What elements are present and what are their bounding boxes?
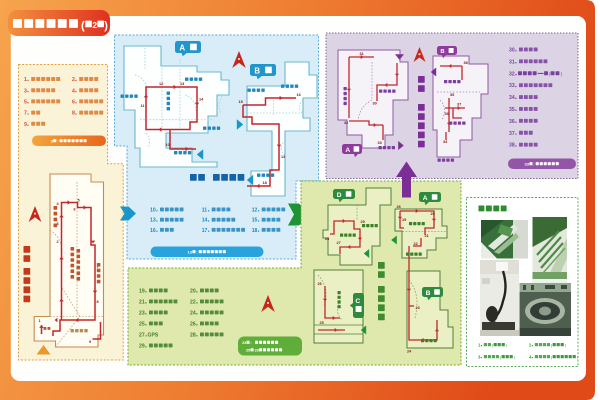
svg-text:38: 38 xyxy=(464,61,468,65)
svg-text:19: 19 xyxy=(139,289,145,295)
svg-text:13: 13 xyxy=(180,82,184,86)
svg-text:2: 2 xyxy=(92,20,97,30)
svg-text:2: 2 xyxy=(57,240,59,244)
svg-text:B: B xyxy=(440,49,444,55)
svg-text:26: 26 xyxy=(318,282,322,286)
svg-text:29: 29 xyxy=(361,220,365,224)
svg-text:23: 23 xyxy=(416,306,420,310)
svg-text:16: 16 xyxy=(150,228,156,234)
svg-text:29: 29 xyxy=(139,344,145,350)
svg-text:11: 11 xyxy=(141,104,145,108)
svg-text:19: 19 xyxy=(402,218,406,222)
svg-text:37: 37 xyxy=(457,103,461,107)
svg-text:24: 24 xyxy=(190,311,196,317)
svg-text:1: 1 xyxy=(24,77,27,83)
svg-text:36: 36 xyxy=(445,112,449,116)
svg-text:34: 34 xyxy=(509,95,515,101)
svg-text:8: 8 xyxy=(72,111,75,117)
svg-text:31: 31 xyxy=(360,52,364,56)
svg-text:30: 30 xyxy=(373,102,377,106)
svg-text:37: 37 xyxy=(509,131,515,137)
svg-text:8: 8 xyxy=(97,300,99,304)
svg-text:25: 25 xyxy=(320,321,324,325)
svg-text::: : xyxy=(533,161,534,166)
svg-text:(: ( xyxy=(81,20,85,32)
svg-text:B: B xyxy=(254,66,260,75)
svg-text:15: 15 xyxy=(239,100,243,104)
svg-text:C: C xyxy=(355,298,360,305)
svg-text:9: 9 xyxy=(89,340,91,344)
svg-text:16: 16 xyxy=(297,93,301,97)
svg-text:25: 25 xyxy=(139,322,145,328)
svg-text:35: 35 xyxy=(509,107,515,113)
svg-text:6: 6 xyxy=(72,100,75,106)
svg-text:A: A xyxy=(179,43,185,52)
svg-text:10: 10 xyxy=(166,143,170,147)
svg-text:17: 17 xyxy=(202,228,208,234)
svg-text:18: 18 xyxy=(252,228,258,234)
svg-text:9: 9 xyxy=(24,122,27,128)
svg-text:21: 21 xyxy=(139,300,145,306)
svg-text:23: 23 xyxy=(139,311,145,317)
svg-text:15: 15 xyxy=(252,218,258,224)
svg-text:26: 26 xyxy=(190,322,196,328)
svg-text:3: 3 xyxy=(24,88,27,94)
svg-text:22: 22 xyxy=(414,242,418,246)
svg-text:13: 13 xyxy=(188,249,193,254)
svg-text:30: 30 xyxy=(509,48,515,54)
svg-text:A: A xyxy=(345,147,350,154)
svg-text:32: 32 xyxy=(509,71,515,77)
svg-text:22: 22 xyxy=(190,300,196,306)
svg-text:6: 6 xyxy=(74,208,76,212)
svg-text:A: A xyxy=(423,195,428,202)
svg-text:33: 33 xyxy=(378,141,382,145)
svg-text:18: 18 xyxy=(263,181,267,185)
svg-text:11: 11 xyxy=(202,208,208,214)
svg-text:31: 31 xyxy=(509,59,515,65)
svg-text:13: 13 xyxy=(150,218,156,224)
svg-text:13: 13 xyxy=(281,155,285,159)
svg-text:32: 32 xyxy=(344,121,348,125)
svg-text:5: 5 xyxy=(24,100,27,106)
svg-text:28: 28 xyxy=(190,333,196,339)
svg-text:35: 35 xyxy=(450,93,454,97)
svg-text::: : xyxy=(251,340,252,345)
svg-text::: : xyxy=(196,249,197,254)
svg-text:5: 5 xyxy=(78,199,80,203)
svg-text:27: 27 xyxy=(139,333,145,339)
svg-text:33: 33 xyxy=(525,161,530,166)
svg-text:12: 12 xyxy=(159,82,163,86)
svg-text:D: D xyxy=(337,192,342,199)
svg-text:33: 33 xyxy=(509,83,515,89)
svg-text:12: 12 xyxy=(252,208,258,214)
svg-text:20: 20 xyxy=(431,212,435,216)
svg-text:7: 7 xyxy=(24,111,27,117)
svg-text:2: 2 xyxy=(72,77,75,83)
svg-text:38: 38 xyxy=(509,143,515,149)
svg-text:10: 10 xyxy=(150,208,156,214)
svg-text:4: 4 xyxy=(72,88,75,94)
svg-text:28: 28 xyxy=(325,237,329,241)
svg-text:26: 26 xyxy=(397,205,401,209)
svg-text:): ) xyxy=(104,20,108,32)
svg-text:B: B xyxy=(426,290,431,297)
svg-text:36: 36 xyxy=(509,119,515,125)
svg-text:27: 27 xyxy=(337,241,341,245)
svg-text:14: 14 xyxy=(202,218,208,224)
svg-text:21: 21 xyxy=(425,234,429,238)
svg-text:1: 1 xyxy=(39,319,41,323)
svg-text:20: 20 xyxy=(190,289,196,295)
svg-text:GPS: GPS xyxy=(148,333,159,339)
svg-text::: : xyxy=(57,138,58,143)
